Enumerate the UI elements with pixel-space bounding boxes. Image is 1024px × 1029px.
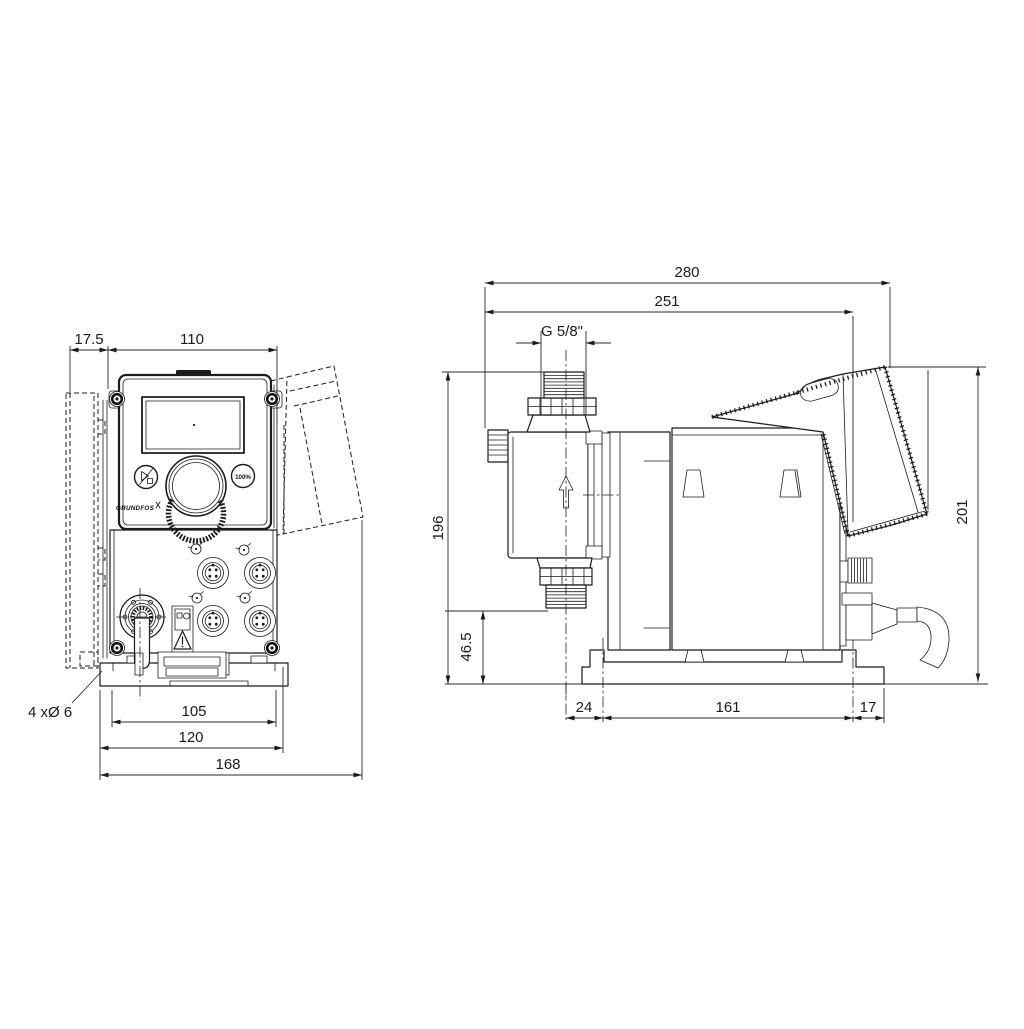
base-plate xyxy=(582,650,884,684)
leader-line xyxy=(72,671,102,703)
dim-overall-length: 280 xyxy=(674,264,699,281)
clip xyxy=(683,470,704,497)
dim-overall-height: 201 xyxy=(954,499,971,524)
technical-drawing-page: 100% GRUNDFOS xyxy=(0,0,1024,1024)
housing-screw xyxy=(265,641,280,656)
dim-overall-width: 168 xyxy=(215,756,240,773)
dim-thread: G 5/8" xyxy=(541,323,583,340)
panel-screw xyxy=(110,392,125,407)
wall-plate-hidden-outline xyxy=(66,393,105,668)
head-body xyxy=(508,432,588,558)
dim-slot-span: 105 xyxy=(181,703,206,720)
dosing-pump-dimensional-drawing: 100% GRUNDFOS xyxy=(0,0,1024,1024)
dosing-head xyxy=(488,350,622,700)
dim-length-to-rear-hole: 251 xyxy=(654,293,679,310)
side-view xyxy=(445,350,988,722)
drive-front-section xyxy=(608,432,670,650)
top-thread xyxy=(544,372,584,398)
motor-body xyxy=(672,428,846,650)
bottom-neck xyxy=(537,558,592,568)
run-stop-button xyxy=(135,466,158,489)
brand-text: GRUNDFOS xyxy=(116,505,155,512)
dim-rear-offset: 17 xyxy=(860,699,877,716)
dim-front-offset: 24 xyxy=(576,699,593,716)
percent-button: 100% xyxy=(232,465,255,488)
display xyxy=(142,397,244,453)
dim-wall-offset: 17.5 xyxy=(74,331,103,348)
housing-screw xyxy=(110,641,125,656)
dim-hole-spacing: 161 xyxy=(715,699,740,716)
mains-cable xyxy=(917,607,949,668)
front-view: 100% GRUNDFOS xyxy=(66,366,363,700)
mounting-holes-note: 4 xØ 6 xyxy=(28,704,72,721)
clip xyxy=(780,470,801,497)
control-panel: 100% GRUNDFOS xyxy=(109,370,282,541)
warning-label xyxy=(172,606,193,653)
dim-height-to-connection: 196 xyxy=(430,515,447,540)
dim-panel-width: 110 xyxy=(180,331,204,348)
dim-plate-width: 120 xyxy=(178,729,203,746)
top-neck xyxy=(527,415,590,432)
percent-button-label: 100% xyxy=(235,474,251,481)
dim-outlet-height: 46.5 xyxy=(458,632,475,661)
